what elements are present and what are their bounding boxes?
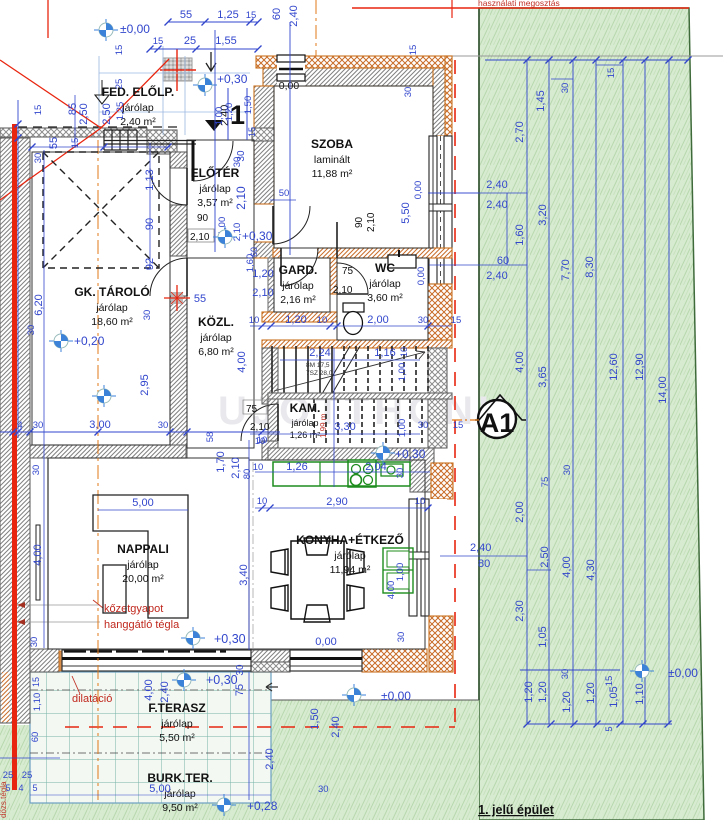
svg-text:2,10: 2,10: [252, 287, 273, 299]
svg-text:4: 4: [17, 420, 22, 431]
svg-text:+0,30: +0,30: [242, 229, 273, 243]
svg-text:8,30: 8,30: [584, 256, 596, 277]
svg-text:2,40: 2,40: [330, 716, 342, 737]
svg-text:2,50: 2,50: [101, 103, 113, 124]
svg-text:11,94 m²: 11,94 m²: [330, 564, 371, 576]
svg-text:4,00: 4,00: [386, 581, 397, 600]
svg-text:18,60 m²: 18,60 m²: [91, 316, 133, 328]
svg-text:±0,00: ±0,00: [120, 22, 150, 36]
svg-text:10: 10: [399, 347, 409, 357]
svg-text:30: 30: [418, 420, 429, 431]
svg-text:6,80 m²: 6,80 m²: [198, 346, 234, 358]
svg-text:1,70: 1,70: [215, 451, 227, 472]
svg-text:járólap: járólap: [281, 280, 314, 292]
svg-text:2,10: 2,10: [190, 232, 210, 243]
svg-text:2,40: 2,40: [159, 681, 171, 702]
svg-text:2,70: 2,70: [514, 121, 526, 142]
svg-text:2,10: 2,10: [230, 457, 242, 478]
svg-text:hanggátló tégla: hanggátló tégla: [104, 619, 180, 631]
svg-text:3,40: 3,40: [238, 564, 250, 585]
svg-text:2,50: 2,50: [78, 103, 90, 124]
svg-text:3,30: 3,30: [334, 421, 355, 433]
svg-text:1,10: 1,10: [32, 693, 43, 712]
svg-text:járólap: járólap: [290, 418, 318, 428]
svg-text:6,20: 6,20: [33, 294, 45, 315]
svg-text:+0,30: +0,30: [206, 673, 238, 687]
svg-text:SZOBA: SZOBA: [311, 137, 353, 151]
svg-text:1,60: 1,60: [514, 224, 526, 245]
svg-text:2,10: 2,10: [232, 223, 243, 242]
svg-text:8M 17,5: 8M 17,5: [306, 362, 330, 369]
svg-text:5: 5: [604, 726, 615, 731]
svg-text:80: 80: [242, 469, 253, 480]
svg-text:50: 50: [279, 188, 290, 199]
svg-text:11,88 m²: 11,88 m²: [312, 168, 353, 180]
svg-text:7,70: 7,70: [560, 259, 572, 280]
svg-text:1,00: 1,00: [397, 419, 408, 438]
svg-text:±0,00: ±0,00: [381, 689, 411, 703]
svg-text:10: 10: [257, 435, 268, 446]
svg-text:1,45: 1,45: [535, 90, 547, 111]
svg-text:GK. TÁROLÓ: GK. TÁROLÓ: [74, 284, 149, 299]
svg-text:KAM.: KAM.: [290, 401, 321, 415]
svg-text:2,10: 2,10: [333, 285, 353, 296]
svg-text:4: 4: [18, 783, 23, 793]
svg-text:1,00: 1,00: [397, 363, 408, 382]
svg-text:+0,28: +0,28: [247, 799, 278, 813]
svg-text:járólap: járólap: [95, 302, 128, 314]
svg-text:KONYHA+ÉTKEZŐ: KONYHA+ÉTKEZŐ: [296, 532, 404, 547]
svg-text:30: 30: [395, 468, 406, 479]
svg-text:F.TERASZ: F.TERASZ: [148, 701, 205, 715]
svg-text:30: 30: [396, 632, 407, 643]
svg-text:1,20: 1,20: [561, 691, 573, 712]
svg-text:használati megosztás: használati megosztás: [478, 0, 560, 8]
svg-text:járólap: járólap: [121, 102, 154, 114]
svg-text:járólap: járólap: [126, 559, 159, 571]
svg-text:1,20: 1,20: [585, 682, 597, 703]
svg-text:4,30: 4,30: [585, 559, 597, 580]
svg-text:járólap: járólap: [160, 718, 193, 730]
svg-text:3,65: 3,65: [537, 366, 549, 387]
svg-text:1,50: 1,50: [243, 96, 254, 115]
svg-text:55: 55: [48, 137, 60, 149]
svg-text:2,10: 2,10: [234, 186, 248, 210]
svg-text:2,40: 2,40: [486, 199, 507, 211]
svg-text:KÖZL.: KÖZL.: [198, 314, 234, 329]
svg-text:1,05: 1,05: [537, 626, 549, 647]
svg-text:10: 10: [249, 315, 260, 326]
svg-text:2,16 m²: 2,16 m²: [280, 294, 316, 306]
svg-text:90: 90: [144, 218, 156, 230]
svg-text:2,40: 2,40: [470, 542, 491, 554]
svg-text:9,50 m²: 9,50 m²: [162, 802, 198, 814]
svg-text:1,25: 1,25: [115, 102, 126, 121]
svg-text:12,60: 12,60: [608, 353, 620, 381]
svg-text:75: 75: [540, 477, 551, 488]
svg-text:laminált: laminált: [314, 154, 350, 166]
svg-text:5,50 m²: 5,50 m²: [159, 732, 195, 744]
svg-text:25: 25: [114, 79, 125, 90]
svg-text:járólap: járólap: [368, 278, 401, 290]
svg-text:5,50: 5,50: [400, 202, 412, 223]
svg-text:20,00 m²: 20,00 m²: [122, 573, 164, 585]
svg-text:80: 80: [478, 558, 490, 570]
svg-text:1,10: 1,10: [634, 683, 646, 704]
svg-text:1,25: 1,25: [217, 9, 238, 21]
svg-text:2,40: 2,40: [486, 270, 507, 282]
svg-text:10: 10: [257, 496, 268, 507]
svg-text:1,26: 1,26: [286, 461, 307, 473]
svg-text:1. jelű épület: 1. jelű épület: [478, 803, 555, 817]
svg-text:90: 90: [354, 216, 365, 228]
svg-text:10: 10: [317, 315, 328, 326]
svg-text:30: 30: [33, 420, 44, 431]
svg-text:30: 30: [29, 637, 40, 648]
svg-text:10: 10: [415, 496, 426, 507]
svg-text:3,20: 3,20: [537, 204, 549, 225]
svg-text:25: 25: [22, 770, 33, 781]
svg-text:30: 30: [33, 153, 44, 164]
svg-text:60: 60: [249, 247, 259, 257]
svg-text:15: 15: [604, 676, 615, 687]
svg-text:1,20: 1,20: [224, 103, 235, 122]
svg-text:5,00: 5,00: [132, 497, 153, 509]
svg-text:A1: A1: [480, 408, 515, 438]
svg-text:4,00: 4,00: [32, 544, 44, 565]
svg-text:2,00: 2,00: [514, 501, 526, 522]
svg-text:15: 15: [247, 127, 257, 137]
svg-text:+0,30: +0,30: [217, 72, 248, 86]
svg-text:55: 55: [180, 9, 192, 21]
svg-text:+0,20: +0,20: [74, 334, 105, 348]
svg-text:30: 30: [562, 465, 573, 476]
svg-text:25: 25: [3, 770, 14, 781]
svg-text:1,26 m²: 1,26 m²: [290, 430, 321, 440]
svg-text:1,16: 1,16: [374, 347, 395, 359]
svg-text:2,40: 2,40: [486, 179, 507, 191]
svg-text:4,00: 4,00: [514, 351, 526, 372]
svg-text:0,00: 0,00: [416, 267, 427, 286]
svg-text:4,00: 4,00: [236, 351, 248, 372]
svg-text:2,00: 2,00: [367, 314, 388, 326]
svg-text:55: 55: [194, 293, 206, 305]
svg-text:1,13: 1,13: [144, 169, 156, 190]
svg-text:±0,00: ±0,00: [668, 666, 698, 680]
svg-text:30: 30: [560, 669, 571, 680]
svg-text:5: 5: [5, 783, 10, 793]
svg-text:92: 92: [144, 258, 156, 270]
svg-text:15: 15: [451, 315, 462, 326]
svg-text:75: 75: [342, 266, 354, 277]
svg-text:2,24: 2,24: [309, 347, 330, 359]
svg-text:15: 15: [31, 677, 41, 687]
svg-text:25: 25: [184, 35, 196, 47]
svg-text:15: 15: [33, 105, 44, 116]
svg-text:60: 60: [497, 255, 509, 267]
svg-text:3,60 m²: 3,60 m²: [367, 292, 403, 304]
svg-text:30: 30: [31, 465, 42, 476]
svg-text:+0,30: +0,30: [395, 447, 426, 461]
svg-text:1,20: 1,20: [285, 314, 306, 326]
svg-text:14,00: 14,00: [657, 376, 669, 404]
svg-text:30: 30: [403, 87, 414, 98]
svg-text:15: 15: [453, 420, 464, 431]
svg-text:1,00: 1,00: [214, 107, 225, 126]
svg-text:30: 30: [560, 83, 571, 94]
svg-text:járólap: járólap: [333, 550, 366, 562]
svg-text:4,00: 4,00: [561, 556, 573, 577]
svg-text:5,00: 5,00: [149, 783, 170, 795]
svg-text:75: 75: [246, 404, 258, 415]
svg-text:2,40: 2,40: [288, 5, 300, 26]
svg-text:15: 15: [114, 45, 125, 56]
svg-text:60: 60: [30, 732, 41, 743]
svg-text:2,30: 2,30: [514, 600, 526, 621]
svg-text:1,20: 1,20: [523, 681, 535, 702]
svg-text:30: 30: [26, 325, 37, 336]
svg-text:GARD.: GARD.: [279, 263, 318, 277]
svg-text:30: 30: [318, 784, 329, 795]
svg-text:30: 30: [142, 310, 153, 321]
svg-text:10: 10: [253, 462, 264, 473]
svg-text:2,40: 2,40: [264, 748, 276, 769]
svg-text:58: 58: [205, 432, 216, 443]
svg-text:2,50: 2,50: [539, 546, 551, 567]
svg-text:12,90: 12,90: [634, 353, 646, 381]
svg-text:15: 15: [153, 36, 164, 47]
svg-text:90: 90: [197, 213, 209, 224]
svg-text:0,00: 0,00: [315, 636, 336, 648]
svg-text:30: 30: [158, 420, 169, 431]
svg-text:15: 15: [606, 68, 617, 79]
svg-text:2,10: 2,10: [366, 212, 377, 232]
svg-text:2,90: 2,90: [326, 496, 347, 508]
svg-text:60: 60: [271, 8, 283, 20]
svg-text:15: 15: [408, 45, 419, 56]
svg-text:0,00: 0,00: [413, 181, 424, 200]
svg-text:15: 15: [70, 138, 81, 149]
svg-text:5: 5: [32, 783, 37, 793]
svg-text:1,00: 1,00: [395, 563, 406, 582]
svg-text:FED. ELŐLP.: FED. ELŐLP.: [102, 84, 174, 99]
svg-text:30: 30: [418, 315, 429, 326]
svg-text:1,55: 1,55: [215, 35, 236, 47]
svg-text:7SZ 28,0: 7SZ 28,0: [306, 370, 333, 377]
svg-text:2,95: 2,95: [139, 374, 151, 395]
svg-text:dilatáció: dilatáció: [72, 693, 112, 705]
svg-text:NAPPALI: NAPPALI: [117, 542, 169, 556]
svg-text:4,00: 4,00: [143, 679, 155, 700]
svg-text:járólap: járólap: [199, 332, 232, 344]
svg-text:WC: WC: [375, 261, 395, 275]
svg-text:15: 15: [246, 10, 257, 21]
svg-text:1,05: 1,05: [608, 686, 620, 707]
svg-text:1,50: 1,50: [309, 708, 321, 729]
svg-text:1,20: 1,20: [537, 681, 549, 702]
svg-text:3,00: 3,00: [89, 419, 110, 431]
svg-text:+0,30: +0,30: [214, 632, 246, 646]
svg-text:30: 30: [236, 150, 247, 162]
svg-text:2,10: 2,10: [250, 422, 270, 433]
